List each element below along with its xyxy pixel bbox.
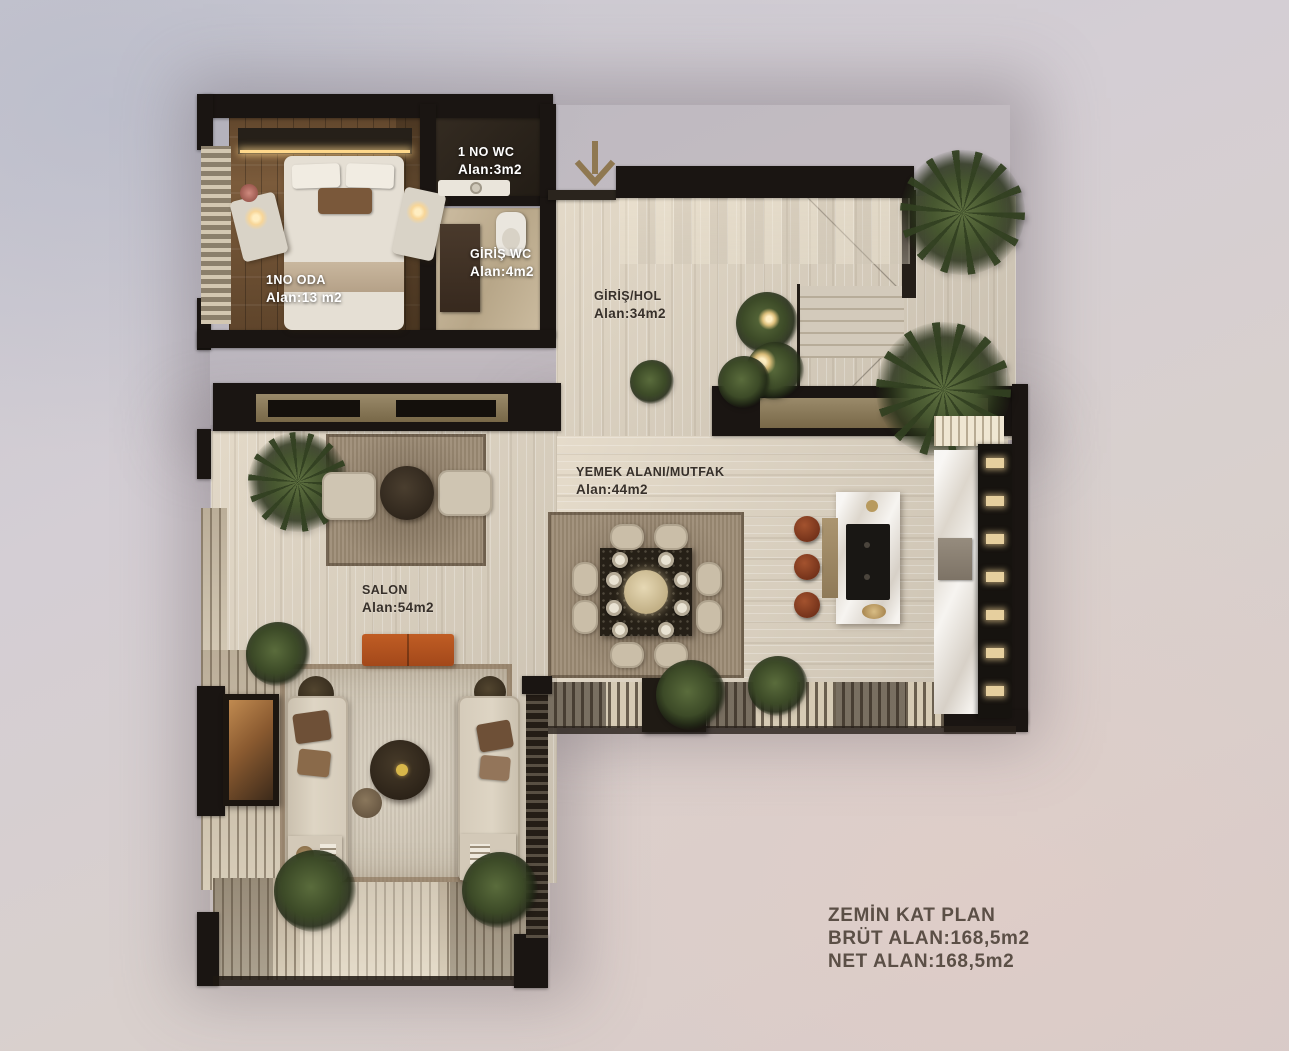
cabinet-lit-shelf	[986, 648, 1004, 658]
bench-seam	[407, 634, 409, 666]
orange-bench	[362, 634, 454, 666]
dining-chair	[572, 562, 598, 596]
cooktop-knob	[864, 542, 870, 548]
wall	[436, 196, 540, 206]
room-area: Alan:13 m2	[266, 289, 342, 306]
nightstand-lamp-glow	[406, 200, 430, 224]
wall-artwork	[223, 694, 279, 806]
media-console-inset	[268, 400, 360, 417]
floor-plan: 1 NO WC Alan:3m2 GİRİŞ WC Alan:4m2 1NO O…	[0, 0, 1289, 1051]
room-label-giris-wc: GİRİŞ WC Alan:4m2	[470, 246, 534, 280]
counter-louver-vent	[934, 416, 1004, 446]
island-sink	[862, 604, 886, 619]
divider-plant	[718, 356, 770, 408]
plan-net-area: NET ALAN:168,5m2	[828, 950, 1030, 973]
room-name: 1 NO WC	[458, 144, 522, 161]
room-name: GİRİŞ WC	[470, 246, 534, 263]
bar-stool	[794, 592, 820, 618]
wc1-basin	[470, 182, 482, 194]
dining-chair	[610, 642, 644, 668]
room-label-hol: GİRİŞ/HOL Alan:34m2	[594, 288, 666, 322]
cooktop-knob	[864, 574, 870, 580]
bed-pillow	[292, 163, 341, 189]
deck-plant	[274, 850, 356, 932]
dining-plate	[606, 572, 622, 588]
deck-plant	[748, 656, 808, 716]
room-name: YEMEK ALANI/MUTFAK	[576, 464, 724, 481]
bed-pillow	[346, 163, 395, 189]
round-side-table	[380, 466, 434, 520]
dining-chair	[696, 600, 722, 634]
stair-steps	[800, 286, 904, 358]
salon-plant	[246, 622, 310, 686]
counter-appliance	[938, 538, 972, 580]
wall	[197, 330, 556, 348]
nesting-table	[352, 788, 382, 818]
dining-chair	[696, 562, 722, 596]
palm-tree	[900, 150, 1025, 275]
divider-plant	[630, 360, 674, 404]
room-label-wc1: 1 NO WC Alan:3m2	[458, 144, 522, 178]
wall	[203, 94, 553, 118]
dining-plate	[674, 572, 690, 588]
wall	[197, 686, 225, 816]
sofa-pillow	[476, 719, 514, 752]
console-plant	[656, 660, 726, 730]
coffee-table-decor	[396, 764, 408, 776]
plan-title: ZEMİN KAT PLAN	[828, 904, 1030, 927]
media-console-inset	[396, 400, 496, 417]
entrance-arrow-icon	[572, 138, 618, 190]
table-centerpiece	[624, 570, 668, 614]
deck-edge	[213, 976, 547, 986]
deck-plant	[462, 852, 538, 928]
room-name: 1NO ODA	[266, 272, 342, 289]
wall	[540, 198, 556, 338]
island-wood-panel	[822, 518, 838, 598]
flower-vase	[240, 184, 258, 202]
room-area: Alan:44m2	[576, 481, 724, 498]
wall	[540, 104, 556, 200]
dining-plate	[606, 600, 622, 616]
entry-threshold	[548, 190, 616, 200]
dining-plate	[658, 622, 674, 638]
wall	[522, 676, 552, 694]
counter-bowl	[866, 500, 878, 512]
island-cooktop	[846, 524, 890, 600]
wall	[197, 94, 213, 150]
dining-plate	[612, 552, 628, 568]
cabinet-lit-shelf	[986, 496, 1004, 506]
cabinet-lit-shelf	[986, 686, 1004, 696]
wall	[197, 429, 211, 479]
wall-wash-light	[620, 198, 910, 264]
room-label-oda: 1NO ODA Alan:13 m2	[266, 272, 342, 306]
bar-stool	[794, 516, 820, 542]
plan-gross-area: BRÜT ALAN:168,5m2	[828, 927, 1030, 950]
wall	[197, 912, 219, 986]
sofa-pillow	[292, 710, 332, 745]
balcony-blinds	[201, 146, 231, 324]
headboard-led-strip	[240, 150, 410, 153]
room-name: SALON	[362, 582, 434, 599]
dining-plate	[674, 600, 690, 616]
wall-counter	[934, 450, 978, 714]
cabinet-lit-shelf	[986, 610, 1004, 620]
artwork-canvas	[229, 700, 273, 800]
cabinet-lit-shelf	[986, 458, 1004, 468]
room-name: GİRİŞ/HOL	[594, 288, 666, 305]
cabinet-lit-shelf	[986, 534, 1004, 544]
sofa-pillow	[297, 748, 332, 777]
armchair	[438, 470, 492, 516]
dining-chair	[654, 524, 688, 550]
nightstand-lamp-glow	[244, 206, 268, 230]
wall-edge	[536, 726, 1016, 734]
wall	[514, 934, 548, 988]
deck-shade	[213, 878, 273, 980]
wall	[616, 166, 914, 198]
bar-stool	[794, 554, 820, 580]
dining-chair	[572, 600, 598, 634]
dining-plate	[612, 622, 628, 638]
room-area: Alan:4m2	[470, 263, 534, 280]
cabinet-lit-shelf	[986, 572, 1004, 582]
room-area: Alan:34m2	[594, 305, 666, 322]
bed-cushion	[318, 188, 372, 214]
sofa-pillow	[479, 755, 511, 782]
plan-title-block: ZEMİN KAT PLAN BRÜT ALAN:168,5m2 NET ALA…	[828, 904, 1030, 973]
room-label-yemek: YEMEK ALANI/MUTFAK Alan:44m2	[576, 464, 724, 498]
armchair	[322, 472, 376, 520]
dining-chair	[610, 524, 644, 550]
garden-light	[758, 308, 780, 330]
room-area: Alan:3m2	[458, 161, 522, 178]
room-label-salon: SALON Alan:54m2	[362, 582, 434, 616]
dining-plate	[658, 552, 674, 568]
room-area: Alan:54m2	[362, 599, 434, 616]
wall	[1012, 384, 1028, 724]
